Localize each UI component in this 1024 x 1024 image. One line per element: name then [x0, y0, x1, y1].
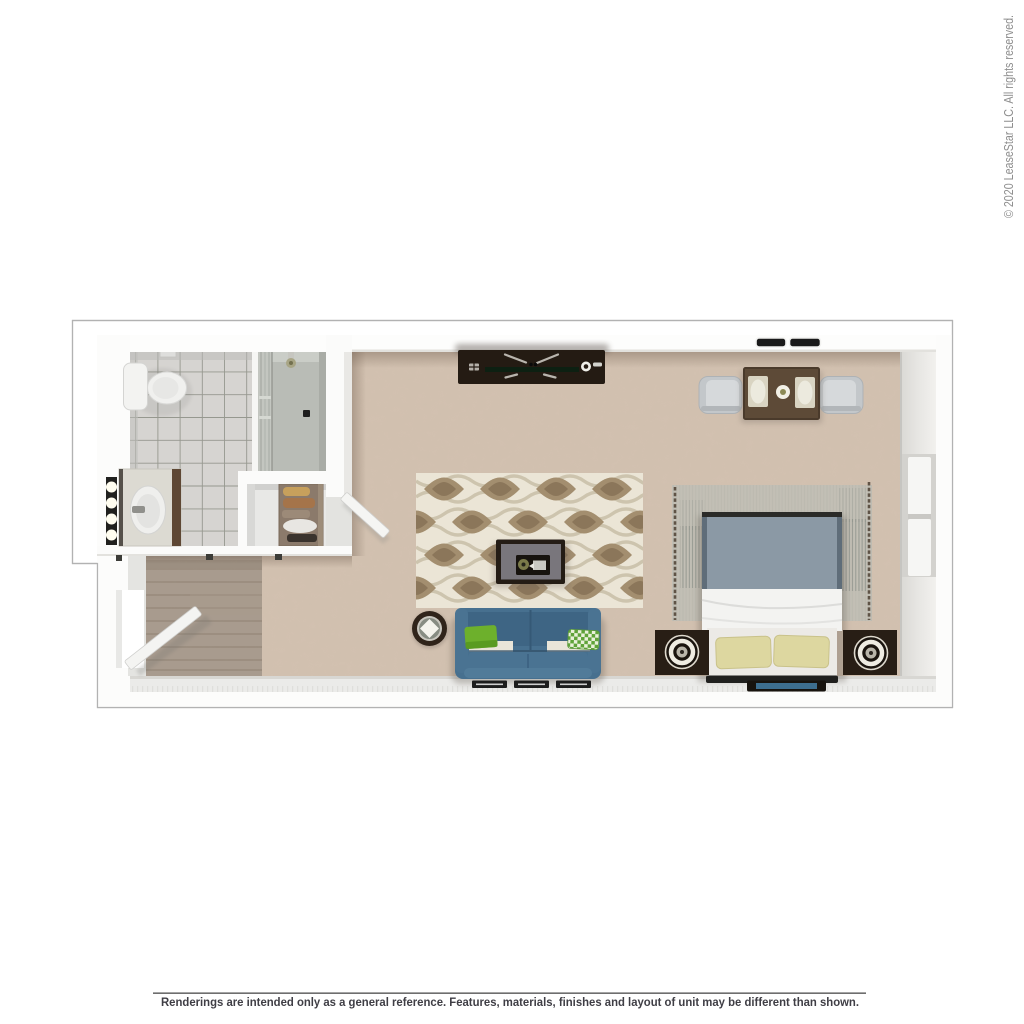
svg-text:© 2020 LeaseStar LLC. All righ: © 2020 LeaseStar LLC. All rights reserve…: [1001, 15, 1016, 218]
svg-text:Renderings are intended only a: Renderings are intended only as a genera…: [161, 995, 859, 1009]
